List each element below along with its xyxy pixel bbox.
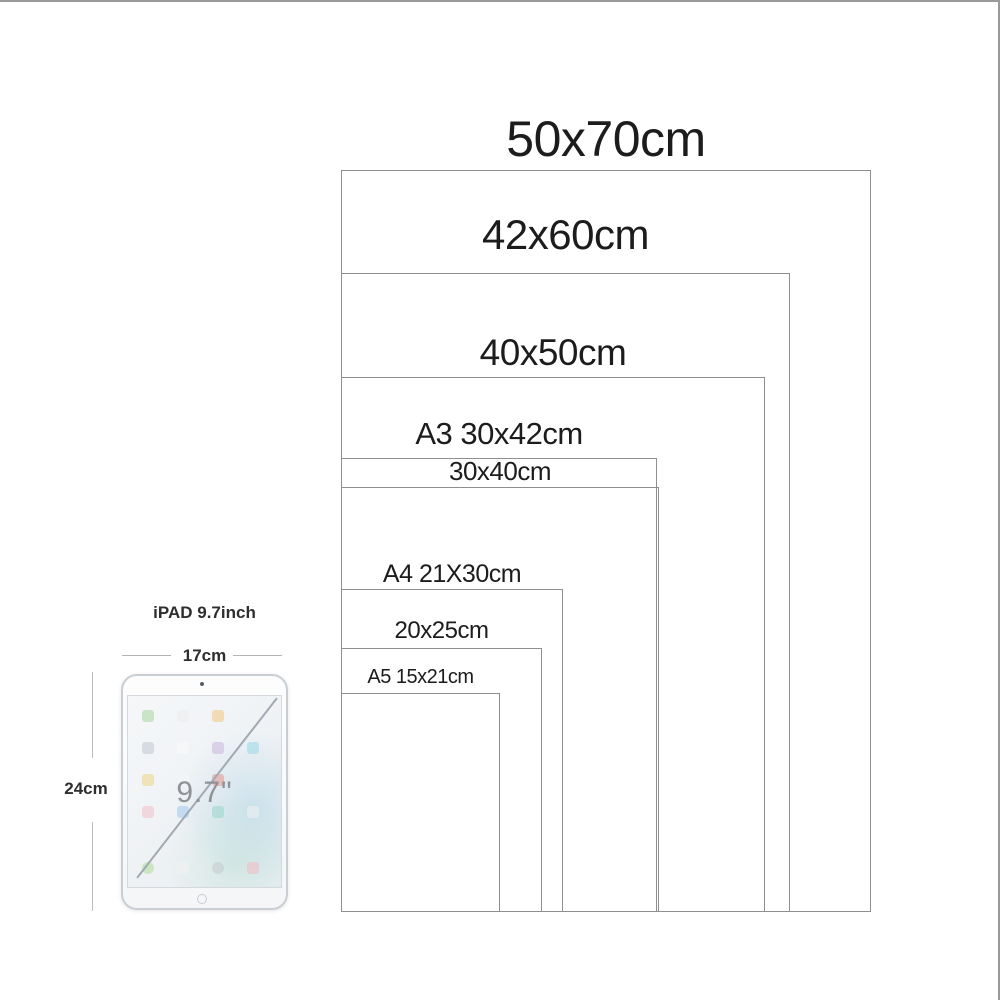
dock-app-icon <box>212 862 224 874</box>
size-label-20x25: 20x25cm <box>341 618 542 644</box>
app-icon <box>212 710 224 722</box>
height-dim-line-bottom <box>92 822 93 911</box>
size-label-50x70: 50x70cm <box>341 112 871 166</box>
size-label-a5-15x21: A5 15x21cm <box>341 667 500 689</box>
size-label-30x40: 30x40cm <box>341 457 659 485</box>
app-icon <box>177 742 189 754</box>
front-camera-dot <box>200 682 204 686</box>
home-button <box>197 894 207 904</box>
width-dim-line-right <box>233 655 282 656</box>
dock-app-icon <box>177 862 189 874</box>
size-label-a3-30x42: A3 30x42cm <box>341 417 657 450</box>
ipad-title: iPAD 9.7inch <box>121 604 288 621</box>
size-label-42x60: 42x60cm <box>341 212 790 257</box>
app-icon <box>212 742 224 754</box>
app-icon <box>177 710 189 722</box>
height-dim-label: 24cm <box>56 780 116 797</box>
height-dim-line-top <box>92 672 93 758</box>
app-icon <box>247 742 259 754</box>
size-comparison-diagram: 50x70cm42x60cm40x50cmA3 30x42cm30x40cmA4… <box>0 0 1000 1000</box>
app-icon <box>142 710 154 722</box>
app-icon <box>142 742 154 754</box>
dock-app-icon <box>247 862 259 874</box>
size-label-a4-21x30: A4 21X30cm <box>341 561 563 588</box>
size-label-40x50: 40x50cm <box>341 333 765 373</box>
size-rect-a5-15x21 <box>341 693 500 912</box>
screen-diagonal-label: 9.7" <box>127 778 282 808</box>
